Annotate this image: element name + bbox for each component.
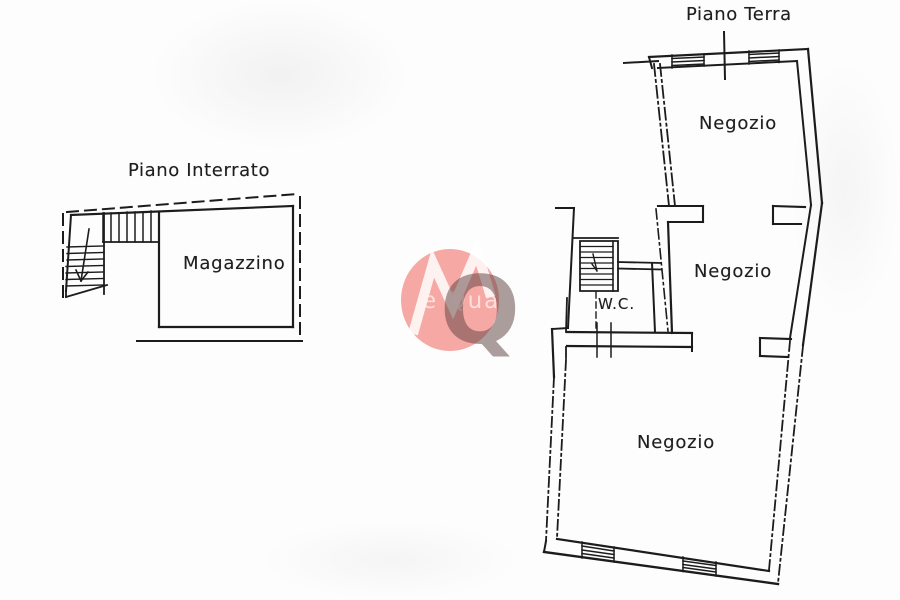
piano-terra-plan xyxy=(544,32,822,584)
piano-interrato-title: Piano Interrato xyxy=(128,160,270,181)
stair-direction-arrow xyxy=(76,229,89,281)
negozio3-room-label: Negozio xyxy=(637,432,715,453)
watermark-logo: e Qua Q xyxy=(401,249,520,366)
magazzino-room-label: Magazzino xyxy=(183,253,286,274)
divider-shop1-shop2 xyxy=(658,206,805,224)
terra-stair-steps xyxy=(580,247,613,286)
plan-linework: e Qua Q xyxy=(0,0,900,600)
terra-title-pointer xyxy=(724,32,725,79)
negozio1-left-boundary xyxy=(654,64,675,206)
negozio2-room-label: Negozio xyxy=(694,261,772,282)
negozio1-room-label: Negozio xyxy=(699,113,777,134)
interrato-stairs xyxy=(66,211,159,297)
negozio3-walls xyxy=(544,341,803,584)
watermark-q-letter: Q xyxy=(440,257,520,366)
wc-room-label: W.C. xyxy=(598,295,635,313)
terra-stairs-wc xyxy=(552,208,661,377)
floorplan-scan: e Qua Q xyxy=(0,0,900,600)
divider-shop2-shop3 xyxy=(567,323,791,357)
piano-terra-title: Piano Terra xyxy=(686,4,792,25)
